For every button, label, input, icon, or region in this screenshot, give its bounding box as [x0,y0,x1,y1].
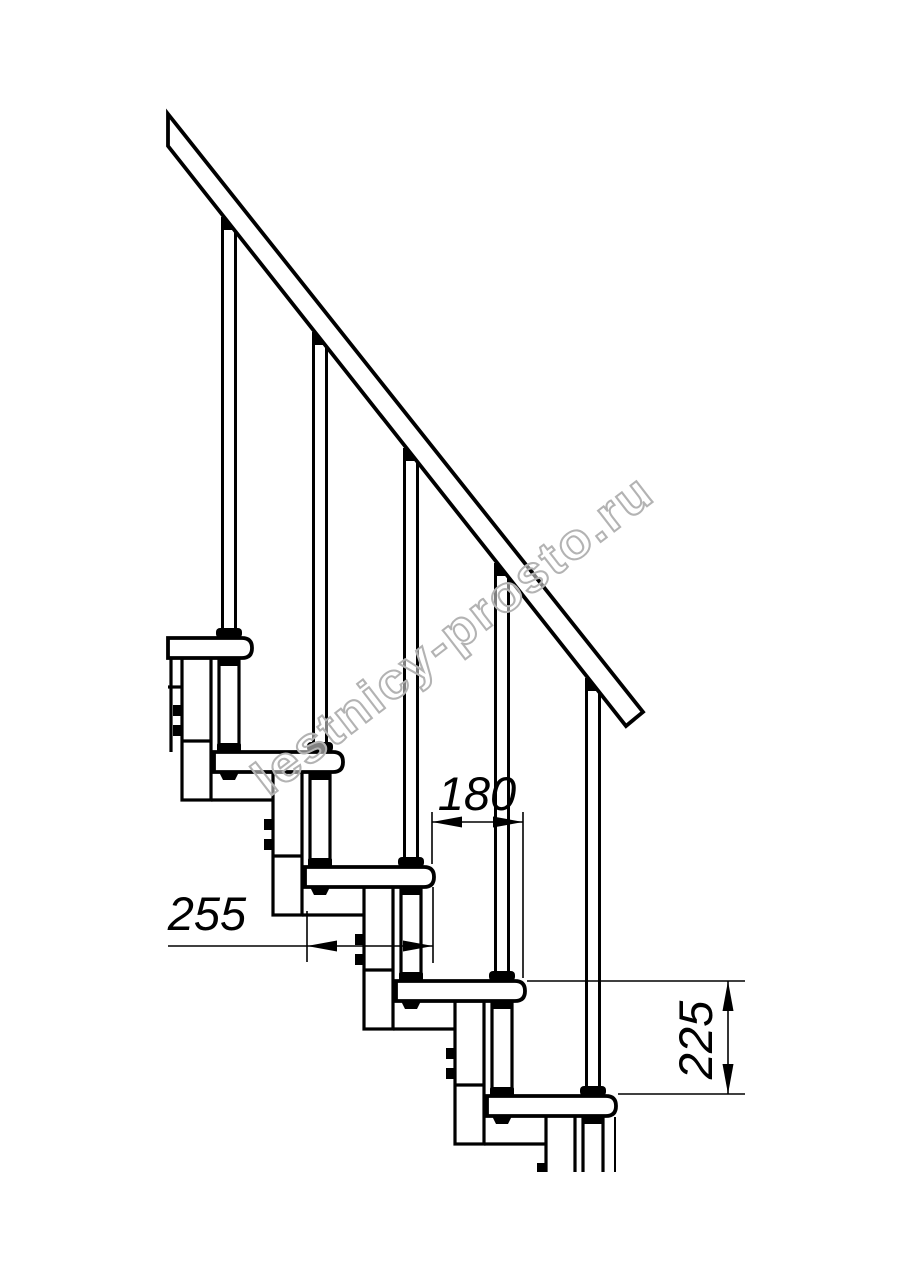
baluster-foot [489,971,515,981]
technical-drawing-canvas: 180 255 225 lestnicy-prosto.ru [0,0,914,1280]
tube-foot [217,743,241,752]
staircase-side-view-drawing: 180 255 225 lestnicy-prosto.ru [0,0,914,1280]
plate-clamp [446,1048,455,1059]
tube-foot [399,972,423,981]
plate-clamp [173,725,182,736]
plate-clamp [264,839,273,850]
dimension-label-tread-depth: 255 [167,887,247,940]
tube-top-collar [220,658,239,666]
support-tube [492,1001,512,1096]
plate-clamp [355,934,364,945]
baluster-rod [314,343,327,752]
support-tube [219,658,239,752]
baluster-foot [580,1086,606,1096]
module-plate [455,1001,484,1144]
tube-foot [490,1087,514,1096]
tube-foot [308,858,332,867]
baluster-foot [216,628,242,638]
plate-clamp [173,705,182,716]
tube-top-collar [493,1001,512,1009]
plate-clamp [537,1163,546,1172]
plate-clamp [264,819,273,830]
plate-clamp [446,1068,455,1079]
plate-clamp [355,954,364,965]
tread [168,638,252,658]
dimension-label-rise: 225 [669,1000,722,1080]
support-tube [310,772,330,867]
module-plate [364,887,393,1029]
tube-top-collar [402,887,421,895]
dimension-label-going: 180 [438,767,516,820]
baluster-foot [398,857,424,867]
baluster-rod [223,228,236,638]
tread [305,867,434,887]
baluster-rod [587,689,600,1096]
tread [487,1096,616,1116]
tube-top-collar [584,1116,603,1124]
module-plate [182,658,211,800]
support-tube [401,887,421,981]
tread [396,981,525,1001]
